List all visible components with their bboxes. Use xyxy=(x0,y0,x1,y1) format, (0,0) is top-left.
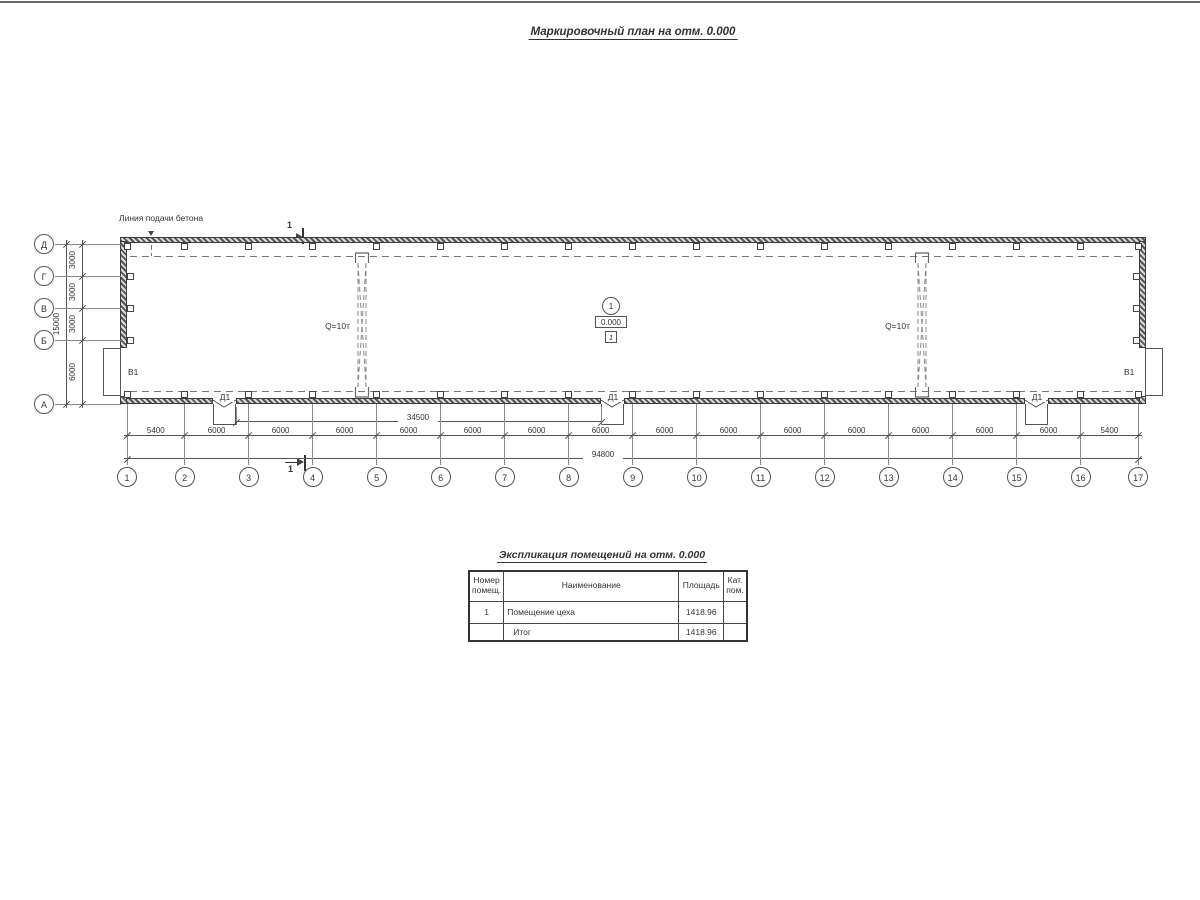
column-mark xyxy=(757,391,764,398)
column-mark xyxy=(309,391,316,398)
door-tag-1: Д1 xyxy=(216,392,234,402)
dim-label-bay: 6000 xyxy=(905,426,937,435)
room-schedule-table: Номер помещ. Наименование Площадь Кат. п… xyxy=(468,570,748,642)
schedule-header-area: Площадь xyxy=(679,571,724,601)
crane-bridge-2 xyxy=(912,250,932,400)
column-mark xyxy=(124,391,131,398)
schedule-cell-area: 1418.96 xyxy=(679,601,724,623)
grid-axis-bubble: 9 xyxy=(623,467,643,487)
grid-axis-bubble: 14 xyxy=(943,467,963,487)
dim-label-bay: 6000 xyxy=(649,426,681,435)
column-mark xyxy=(127,273,134,280)
column-mark xyxy=(127,305,134,312)
column-mark xyxy=(949,391,956,398)
grid-axis-bubble: 15 xyxy=(1007,467,1027,487)
schedule-cell-number: 1 xyxy=(469,601,504,623)
wall-left-seg1 xyxy=(120,241,127,348)
grid-axis-bubble: А xyxy=(34,394,54,414)
axis-line xyxy=(55,276,121,277)
dim-line-total-left xyxy=(66,240,67,408)
dim-label-bay: 6000 xyxy=(457,426,489,435)
column-mark xyxy=(501,243,508,250)
wall-right-seg1 xyxy=(1139,241,1146,348)
column-mark xyxy=(693,391,700,398)
grid-axis-bubble: Г xyxy=(34,266,54,286)
axis-line xyxy=(55,340,121,341)
dim-label-doors: 34500 xyxy=(398,413,438,422)
column-mark xyxy=(1133,337,1140,344)
dim-label-total-bottom: 94800 xyxy=(583,450,623,459)
grid-axis-bubble: 11 xyxy=(751,467,771,487)
wall-bottom-seg2 xyxy=(236,398,601,405)
crane-capacity-label-2: Q=10т xyxy=(872,321,910,331)
gate-tag-left: В1 xyxy=(128,367,138,377)
dim-label-bay: 5400 xyxy=(140,426,172,435)
column-mark xyxy=(437,391,444,398)
door-tag-2: Д1 xyxy=(604,392,622,402)
section-mark-number-bottom: 1 xyxy=(288,464,293,474)
column-mark xyxy=(885,391,892,398)
dim-label-bay: 3000 xyxy=(68,276,78,308)
grid-axis-bubble: В xyxy=(34,298,54,318)
schedule-cell-category xyxy=(724,601,747,623)
dim-label-bay: 5400 xyxy=(1093,426,1125,435)
column-mark xyxy=(373,243,380,250)
grid-axis-bubble: 4 xyxy=(303,467,323,487)
dim-line-bays-left xyxy=(82,240,83,408)
schedule-cell-name: Помещение цеха xyxy=(504,601,679,623)
grid-axis-bubble: 17 xyxy=(1128,467,1148,487)
dim-label-bay: 6000 xyxy=(777,426,809,435)
column-mark xyxy=(245,391,252,398)
gate-tag-right: В1 xyxy=(1124,367,1134,377)
grid-axis-bubble: 12 xyxy=(815,467,835,487)
column-mark xyxy=(1135,391,1142,398)
column-mark xyxy=(757,243,764,250)
grid-axis-bubble: Б xyxy=(34,330,54,350)
column-mark xyxy=(949,243,956,250)
grid-axis-bubble: 16 xyxy=(1071,467,1091,487)
grid-axis-bubble: Д xyxy=(34,234,54,254)
door-tag-3: Д1 xyxy=(1028,392,1046,402)
wall-bottom-seg4 xyxy=(1048,398,1146,405)
room-number-tag: 1 xyxy=(605,331,617,343)
column-mark xyxy=(885,243,892,250)
column-mark xyxy=(821,391,828,398)
column-mark xyxy=(629,391,636,398)
grid-axis-bubble: 1 xyxy=(117,467,137,487)
column-mark xyxy=(565,391,572,398)
column-mark xyxy=(127,337,134,344)
schedule-cell-category xyxy=(724,623,747,641)
crane-rail-top xyxy=(130,256,1138,257)
dim-label-bay: 6000 xyxy=(521,426,553,435)
dim-label-total-left: 15000 xyxy=(52,308,62,340)
gate-right xyxy=(1145,348,1163,396)
column-mark xyxy=(181,243,188,250)
dim-label-bay: 3000 xyxy=(68,308,78,340)
dim-label-bay: 6000 xyxy=(713,426,745,435)
column-mark xyxy=(1077,391,1084,398)
down-arrow-icon xyxy=(148,231,154,236)
column-mark xyxy=(501,391,508,398)
dim-label-bay: 6000 xyxy=(265,426,297,435)
grid-axis-bubble: 6 xyxy=(431,467,451,487)
grid-axis-bubble: 3 xyxy=(239,467,259,487)
section-mark-number-top: 1 xyxy=(287,220,292,230)
drawing-sheet: Маркировочный план на отм. 0.000 Линия п… xyxy=(0,0,1200,900)
schedule-header-category: Кат. пом. xyxy=(724,571,747,601)
grid-axis-bubble: 7 xyxy=(495,467,515,487)
column-mark xyxy=(1135,243,1142,250)
grid-axis-bubble: 8 xyxy=(559,467,579,487)
dim-label-bay: 6000 xyxy=(841,426,873,435)
column-mark xyxy=(693,243,700,250)
dim-label-bay: 6000 xyxy=(393,426,425,435)
column-mark xyxy=(181,391,188,398)
column-mark xyxy=(245,243,252,250)
column-mark xyxy=(821,243,828,250)
grid-axis-bubble: 5 xyxy=(367,467,387,487)
schedule-header-name: Наименование xyxy=(504,571,679,601)
floor-plan: Линия подачи бетона 1 1 xyxy=(0,0,1200,540)
column-mark xyxy=(1013,391,1020,398)
column-mark xyxy=(1133,273,1140,280)
grid-axis-bubble: 2 xyxy=(175,467,195,487)
schedule-cell-area: 1418.96 xyxy=(679,623,724,641)
dim-label-bay: 6000 xyxy=(585,426,617,435)
column-mark xyxy=(309,243,316,250)
section-arrow-icon-bottom xyxy=(297,458,304,466)
schedule-header-number: Номер помещ. xyxy=(469,571,504,601)
dim-label-bay: 6000 xyxy=(201,426,233,435)
dim-label-bay: 6000 xyxy=(969,426,1001,435)
column-mark xyxy=(1077,243,1084,250)
wall-bottom-seg1 xyxy=(120,398,213,405)
dim-label-bay: 6000 xyxy=(1033,426,1065,435)
grid-axis-bubble: 13 xyxy=(879,467,899,487)
node-bubble: 1 xyxy=(602,297,620,315)
schedule-title: Экспликация помещений на отм. 0.000 xyxy=(497,549,707,563)
column-mark xyxy=(1133,305,1140,312)
elevation-mark: 0.000 xyxy=(595,316,627,328)
column-mark xyxy=(1013,243,1020,250)
dim-label-bay: 6000 xyxy=(329,426,361,435)
column-mark xyxy=(124,243,131,250)
column-mark xyxy=(437,243,444,250)
note-concrete-feed-line: Линия подачи бетона xyxy=(119,213,203,223)
column-mark xyxy=(565,243,572,250)
schedule-cell-number xyxy=(469,623,504,641)
crane-capacity-label-1: Q=10т xyxy=(312,321,350,331)
dim-label-bay: 6000 xyxy=(68,356,78,388)
axis-line xyxy=(55,308,121,309)
table-row: Итог 1418.96 xyxy=(469,623,747,641)
dim-label-bay: 3000 xyxy=(68,244,78,276)
table-row: 1 Помещение цеха 1418.96 xyxy=(469,601,747,623)
grid-axis-bubble: 10 xyxy=(687,467,707,487)
gate-left xyxy=(103,348,121,396)
schedule-cell-name: Итог xyxy=(504,623,679,641)
column-mark xyxy=(373,391,380,398)
column-mark xyxy=(629,243,636,250)
crane-bridge-1 xyxy=(352,250,372,400)
